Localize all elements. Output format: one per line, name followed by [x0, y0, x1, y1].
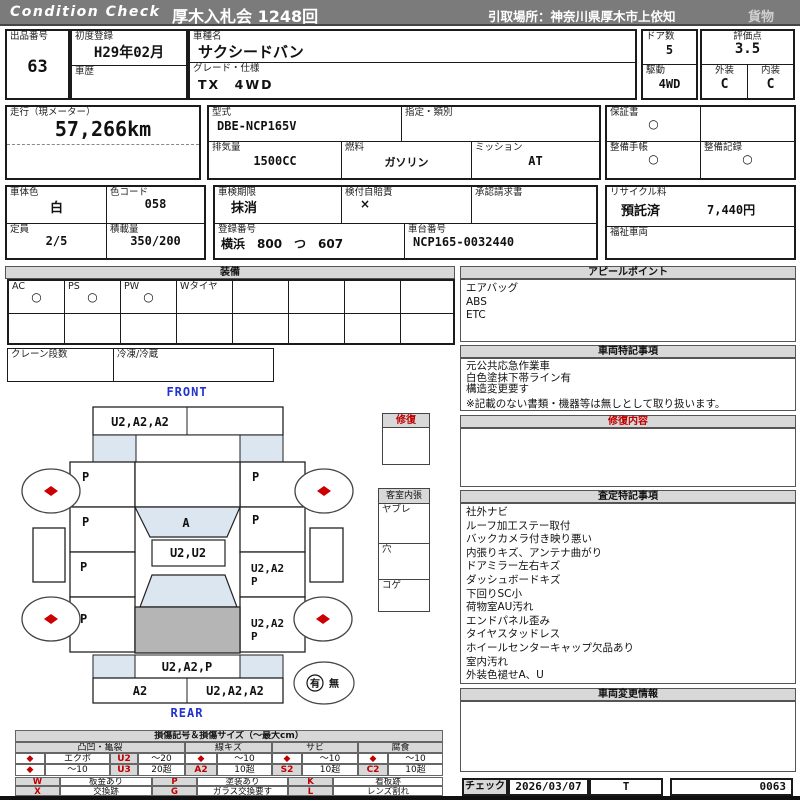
crane-box: クレーン段数 — [7, 348, 114, 382]
legend-mark-w-desc: 板金あり — [60, 777, 152, 786]
damage-code-roof-front: U2,U2 — [170, 546, 206, 560]
right-side-sill — [310, 528, 343, 582]
legend-mark-l-desc: レンズ割れ — [333, 786, 443, 796]
body-color-box: 車体色 白 色コード 058 定員 2/5 積載量 350/200 — [5, 185, 206, 260]
rear-gate-panel — [135, 607, 240, 653]
recycle-fee: 7,440円 — [707, 201, 755, 218]
mission-label: ミッション — [472, 142, 599, 154]
class-label: 指定・類別 — [402, 107, 599, 119]
repair-content-box — [460, 428, 796, 487]
reefer-box: 冷凍/冷蔵 — [113, 348, 274, 382]
displacement-value: 1500CC — [209, 154, 341, 168]
damage-code-rear-panel-left: A2 — [133, 684, 147, 698]
legend-mark-g-desc: ガラス交換要す — [197, 786, 288, 796]
assessment-line: 社外ナビ — [466, 506, 790, 520]
rear-window-glass — [140, 575, 237, 607]
damage-code-left-fender: P — [82, 470, 89, 484]
pickup-location: 引取場所：神奈川県厚木市上依知 — [488, 6, 676, 25]
equipment-label: Wタイヤ — [177, 281, 232, 293]
equipment-mark: ○ — [65, 290, 120, 304]
maintenance-book-mark: ○ — [607, 152, 700, 166]
lot-number-box: 出品番号 63 — [5, 29, 70, 100]
auction-condition-sheet: Condition Check 厚木入札会 1248回 引取場所：神奈川県厚木市… — [0, 0, 800, 800]
taillight-right — [240, 655, 283, 678]
interior-grade-value: C — [748, 77, 793, 92]
documents-box: 保証書 ○ 整備手帳 ○ 整備記録 ○ — [605, 105, 796, 180]
cabin-interior-item: コゲ — [379, 580, 429, 612]
doors-label: ドア数 — [643, 31, 696, 43]
cabin-interior-item: 穴 — [379, 544, 429, 580]
spec-box: 型式 DBE-NCP165V 指定・類別 排気量 1500CC 燃料 ガソリン … — [207, 105, 601, 180]
legend-mark-p-desc: 塗装あり — [197, 777, 288, 786]
assessment-line: 室内汚れ — [466, 656, 790, 670]
legend-mark-l: L — [288, 786, 333, 796]
taillight-left — [93, 655, 135, 678]
damage-code-left-front-door: P — [82, 515, 89, 529]
front-grille — [136, 435, 240, 462]
legend-code-c2: C2 — [358, 764, 388, 776]
appeal-line: ABS — [466, 296, 790, 310]
right-front-door-panel — [240, 507, 305, 552]
damage-code-right-quarter-1: U2,A2 — [251, 617, 284, 630]
insurance-mark: × — [360, 197, 471, 211]
legend-mark-k-desc: 看板跡 — [333, 777, 443, 786]
damage-diamond-icon: ◆ — [15, 764, 45, 776]
maintenance-record-mark: ○ — [701, 152, 794, 166]
damage-code-right-rear-door-1: U2,A2 — [251, 562, 284, 575]
legend-scratch-size-1: 〜10 — [217, 753, 272, 764]
inspection-value: 抹消 — [231, 197, 341, 216]
legend-corrosion-size-1: 〜10 — [388, 753, 443, 764]
repair-mini-header: 修復 — [383, 414, 429, 428]
score-box: 評価点 3.5 外装 C 内装 C — [700, 29, 795, 100]
displacement-label: 排気量 — [209, 142, 341, 154]
repair-mini-box: 修復 — [382, 413, 430, 465]
damage-code-left-rear-door: P — [80, 560, 87, 574]
lot-number-label: 出品番号 — [7, 31, 68, 43]
legend-title: 損傷記号＆損傷サイズ（〜最大cm） — [15, 730, 443, 742]
chassis-no-value: NCP165-0032440 — [413, 235, 596, 249]
damage-code-right-rear-door-2: P — [251, 575, 258, 588]
capacity-value: 2/5 — [7, 234, 106, 248]
exterior-grade-label: 外装 — [702, 65, 747, 77]
special-note-line: 構造変更要す — [466, 384, 790, 396]
doors-drive-box: ドア数 5 駆動 4WD — [641, 29, 698, 100]
special-notes-footnote: ※記載のない書類・機器等は無しとして取り扱います。 — [466, 399, 790, 411]
left-front-door-panel — [70, 507, 135, 552]
left-fender-panel — [70, 462, 135, 507]
legend-dent-label-2: 〜10 — [45, 764, 110, 776]
warranty-mark: ○ — [607, 117, 700, 131]
damage-diamond-icon: ◆ — [358, 753, 388, 764]
model-name-value: サクシードバン — [198, 41, 635, 62]
legend-dent-size-1: 〜20 — [138, 753, 185, 764]
score-value: 3.5 — [702, 41, 793, 57]
doors-value: 5 — [643, 43, 696, 57]
legend-rust-size-2: 10超 — [302, 764, 358, 776]
mileage-divider — [7, 144, 199, 145]
damage-code-right-front-door: P — [252, 513, 259, 527]
legend-rust-size-1: 〜10 — [302, 753, 358, 764]
assessment-line: 下回りSC小 — [466, 588, 790, 602]
mark-legend: W 板金あり P 塗装あり K 看板跡 X 交換跡 G ガラス交換要す L レン… — [15, 777, 443, 796]
equipment-header: 装備 — [5, 266, 455, 279]
legend-group-dent: 凸凹・亀裂 — [15, 742, 185, 753]
damage-diamond-icon: ◆ — [272, 753, 302, 764]
assessment-line: ホイールセンターキャップ欠品あり — [466, 642, 790, 656]
assessment-box: 社外ナビ ルーフ加工ステー取付 バックカメラ付き映り悪い 内張りキズ、アンテナ曲… — [460, 503, 796, 684]
check-label-cell: チェック — [462, 778, 508, 796]
legend-mark-p: P — [152, 777, 197, 786]
load-value: 350/200 — [107, 234, 204, 248]
title-bar: Condition Check 厚木入札会 1248回 引取場所：神奈川県厚木市… — [0, 0, 800, 26]
legend-dent-size-2: 20超 — [138, 764, 185, 776]
damage-legend: 損傷記号＆損傷サイズ（〜最大cm） 凸凹・亀裂 線キズ サビ 腐食 ◆ エクボ … — [15, 730, 443, 776]
assessment-line: ダッシュボードキズ — [466, 574, 790, 588]
drive-value: 4WD — [643, 77, 696, 91]
legend-code-a2: A2 — [185, 764, 217, 776]
change-info-box — [460, 701, 796, 772]
legend-code-u2: U2 — [110, 753, 138, 764]
bottom-rule — [0, 796, 800, 800]
presence-mark-ellipse — [294, 662, 354, 704]
change-info-header: 車両変更情報 — [460, 688, 796, 701]
model-code-value: DBE-NCP165V — [217, 119, 401, 133]
mileage-box: 走行（現メーター） 57,266km — [5, 105, 201, 180]
first-reg-value: H29年02月 — [72, 42, 186, 62]
legend-dent-label-1: エクボ — [45, 753, 110, 764]
repair-content-header: 修復内容 — [460, 415, 796, 428]
damage-code-windshield: A — [182, 516, 190, 530]
assessment-line: 荷物室AU汚れ — [466, 601, 790, 615]
appeal-header: アピールポイント — [460, 266, 796, 279]
assessment-line: 内張りキズ、アンテナ曲がり — [466, 547, 790, 561]
model-code-label: 型式 — [209, 107, 401, 119]
damage-diamond-icon: ◆ — [15, 753, 45, 764]
welfare-label: 福祉車両 — [607, 227, 794, 239]
assessment-line: ルーフ加工ステー取付 — [466, 520, 790, 534]
appeal-box: エアバッグ ABS ETC — [460, 279, 796, 342]
legend-mark-x: X — [15, 786, 60, 796]
special-note-line: 元公共応急作業車 — [466, 361, 790, 373]
fuel-label: 燃料 — [342, 142, 471, 154]
check-number-cell: 0063 — [670, 778, 793, 796]
legend-mark-w: W — [15, 777, 60, 786]
damage-code-right-quarter-2: P — [251, 630, 258, 643]
legend-mark-x-desc: 交換跡 — [60, 786, 152, 796]
cabin-interior-box: 客室内張 ヤブレ 穴 コゲ — [378, 488, 430, 612]
body-color-value: 白 — [7, 197, 106, 216]
presence-yes-label: 有 — [310, 677, 320, 690]
reefer-label: 冷凍/冷蔵 — [114, 349, 273, 361]
cabin-interior-item: ヤブレ — [379, 504, 429, 544]
check-inspector-cell: T — [589, 778, 663, 796]
lot-number-value: 63 — [7, 57, 68, 77]
headlight-left — [93, 435, 136, 462]
crane-label: クレーン段数 — [8, 349, 113, 361]
fuel-value: ガソリン — [342, 154, 471, 170]
cabin-interior-header: 客室内張 — [379, 489, 429, 504]
damage-code-left-quarter: P — [80, 612, 87, 626]
equipment-mark: ○ — [121, 290, 176, 304]
legend-scratch-size-2: 10超 — [217, 764, 272, 776]
legend-mark-g: G — [152, 786, 197, 796]
legend-mark-k: K — [288, 777, 333, 786]
brand-logo: Condition Check — [10, 4, 160, 20]
check-date-cell: 2026/03/07 — [508, 778, 589, 796]
assessment-header: 査定特記事項 — [460, 490, 796, 503]
special-notes-header: 車両特記事項 — [460, 345, 796, 358]
assessment-line: バックカメラ付き映り悪い — [466, 533, 790, 547]
special-notes-box: 元公共応急作業車 白色塗抹下帯ライン有 構造変更要す ※記載のない書類・機器等は… — [460, 358, 796, 411]
legend-group-rust: サビ — [272, 742, 358, 753]
reg-no-value: 横浜 800 つ 607 — [221, 235, 404, 252]
grade-value: TX 4WD — [198, 74, 635, 93]
color-code-value: 058 — [107, 197, 204, 211]
legend-corrosion-size-2: 10超 — [388, 764, 443, 776]
recycle-box: リサイクル料 預託済 7,440円 福祉車両 — [605, 185, 796, 260]
category-badge: 貨物 — [748, 6, 774, 25]
left-rear-door-panel — [70, 552, 135, 597]
registration-box: 初度登録 H29年02月 車歴 — [70, 29, 188, 100]
drive-label: 駆動 — [643, 65, 696, 77]
headlight-right — [240, 435, 283, 462]
damage-code-right-fender: P — [252, 470, 259, 484]
damage-diamond-icon: ◆ — [185, 753, 217, 764]
assessment-line: ドアミラー左右キズ — [466, 560, 790, 574]
legend-group-corrosion: 腐食 — [358, 742, 443, 753]
assessment-line: タイヤスタッドレス — [466, 628, 790, 642]
approval-label: 承認請求書 — [472, 187, 596, 199]
right-fender-panel — [240, 462, 305, 507]
presence-no-label: 無 — [329, 677, 339, 690]
appeal-line: エアバッグ — [466, 282, 790, 296]
interior-grade-label: 内装 — [748, 65, 793, 77]
history-label: 車歴 — [72, 66, 186, 78]
recycle-status: 預託済 — [621, 200, 660, 219]
damage-code-front-bumper: U2,A2,A2 — [111, 415, 169, 429]
hood-panel — [135, 462, 240, 507]
recycle-label: リサイクル料 — [607, 187, 794, 199]
mileage-value: 57,266km — [7, 117, 199, 141]
legend-code-s2: S2 — [272, 764, 302, 776]
assessment-line: エンドパネル歪み — [466, 615, 790, 629]
assessment-line: 外装色褪せA、U — [466, 669, 790, 683]
legend-group-scratch: 線キズ — [185, 742, 272, 753]
equipment-mark: ○ — [9, 290, 64, 304]
mission-value: AT — [472, 154, 599, 168]
registration-detail-box: 車検期限 抹消 検付自賠責 × 承認請求書 登録番号 横浜 800 つ 607 … — [213, 185, 598, 260]
damage-code-rear-panel-right: U2,A2,A2 — [206, 684, 264, 698]
damage-code-rear-bumper: U2,A2,P — [162, 660, 213, 674]
auction-title: 厚木入札会 1248回 — [172, 3, 318, 27]
legend-code-u3: U3 — [110, 764, 138, 776]
front-direction-label: FRONT — [166, 385, 207, 399]
rear-direction-label: REAR — [171, 706, 204, 720]
model-name-box: 車種名 サクシードバン グレード・仕様 TX 4WD — [188, 29, 637, 100]
left-side-sill — [33, 528, 65, 582]
exterior-grade-value: C — [702, 77, 747, 92]
appeal-line: ETC — [466, 309, 790, 323]
equipment-grid: AC○ PS○ PW○ Wタイヤ — [7, 279, 455, 345]
